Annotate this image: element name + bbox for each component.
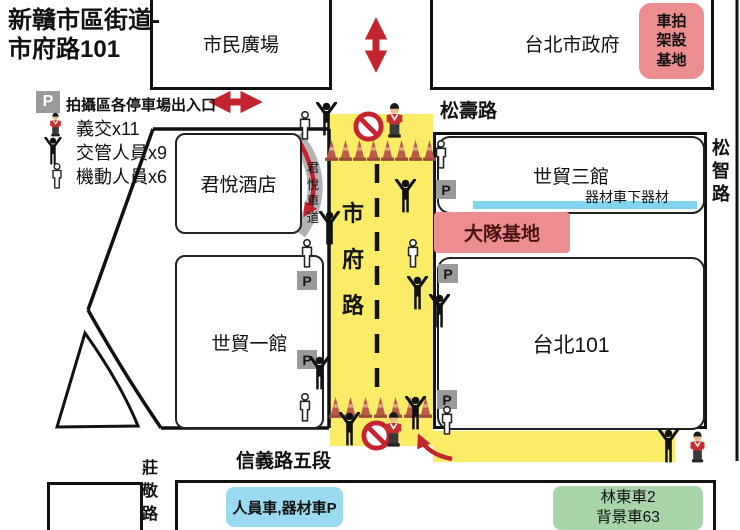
city-hall-label: 台北市政府 (524, 30, 619, 57)
crew-parking-label: 人員車,器材車P (232, 497, 336, 518)
traffic-controller-icon (338, 412, 361, 446)
street-shifu: 市府路 (341, 191, 365, 329)
traffic-island (57, 333, 138, 427)
zone-crew-parking: 人員車,器材車P (226, 487, 343, 527)
zone-brigade-base: 大隊基地 (434, 212, 570, 253)
traffic-controller-icon (43, 137, 63, 165)
brigade-base-label: 大隊基地 (464, 219, 540, 246)
traffic-cone-icon (338, 138, 353, 162)
taipei101-label: 台北101 (532, 329, 609, 359)
twtc1-label: 世貿一館 (211, 329, 287, 356)
volunteer-police-icon (49, 112, 62, 138)
title-line1: 新贛市區街道- (8, 6, 160, 35)
parking-sign: P (36, 91, 60, 113)
location-map: 新贛市區街道- 市府路101 P 拍攝區各停車場出入口 義交x11 交管人員x9… (0, 0, 740, 530)
street-songshou: 松壽路 (440, 96, 497, 123)
no-entry-icon (353, 111, 384, 142)
p-letter: P (302, 273, 311, 289)
parking-sign: P (297, 271, 317, 290)
traffic-controller-icon (315, 102, 338, 136)
traffic-controller-icon (406, 276, 429, 310)
background-cars-line2: 背景車63 (596, 508, 660, 528)
traffic-controller-icon (428, 294, 451, 328)
street-zhuangjing: 莊敬路 (141, 457, 159, 526)
legend-parking-label: 拍攝區各停車場出入口 (66, 94, 216, 115)
p-letter: P (43, 93, 54, 111)
p-letter: P (441, 182, 450, 198)
civic-plaza-label: 市民廣場 (203, 30, 279, 57)
traffic-controller-icon (657, 429, 680, 463)
legend-item-jidong: 機動人員x6 (76, 163, 167, 189)
building-grand-hyatt: 君悅酒店 (175, 133, 302, 234)
mobile-staff-icon (405, 239, 421, 268)
zone-background-cars: 林東車2 背景車63 (553, 486, 703, 530)
page-title: 新贛市區街道- 市府路101 (8, 6, 160, 65)
volunteer-police-icon (384, 411, 403, 449)
twtc3-label: 世貿三館 (533, 162, 609, 189)
title-line2: 市府路101 (8, 35, 160, 64)
volunteer-police-icon (385, 102, 404, 140)
grand-hyatt-label: 君悅酒店 (200, 170, 276, 197)
parking-sign: P (436, 180, 456, 199)
traffic-controller-icon (404, 396, 427, 430)
street-xinyi5: 信義路五段 (236, 446, 331, 473)
building-civic-plaza: 市民廣場 (150, 0, 332, 90)
mobile-staff-icon (297, 111, 313, 140)
background-cars-line1: 林東車2 (600, 488, 655, 508)
traffic-cone-icon (408, 138, 423, 162)
traffic-controller-icon (318, 211, 341, 245)
mobile-staff-icon (433, 140, 449, 169)
mobile-staff-icon (299, 239, 315, 268)
legend-item-jiaoguan: 交管人員x9 (76, 139, 167, 165)
xinyi-road-strip (433, 431, 675, 462)
legend-item-yijiao: 義交x11 (76, 115, 140, 141)
street-songzhi: 松智路 (711, 137, 731, 206)
traffic-controller-icon (308, 356, 331, 390)
mobile-staff-icon (297, 393, 313, 422)
p-letter: P (443, 266, 452, 282)
parking-sign: P (438, 264, 458, 283)
traffic-controller-icon (394, 179, 417, 213)
traffic-cone-icon (324, 138, 339, 162)
equipment-drop-label: 器材車下器材 (585, 187, 669, 207)
building-taipei101: 台北101 (437, 257, 705, 430)
traffic-cone-icon (394, 138, 409, 162)
car-rig-base-label: 車拍架設基地 (657, 12, 687, 70)
zone-car-rig-base: 車拍架設基地 (639, 3, 704, 79)
southwest-block (47, 482, 143, 530)
mobile-staff-icon (439, 406, 455, 435)
volunteer-police-icon (689, 430, 706, 465)
mobile-staff-icon (50, 163, 64, 189)
